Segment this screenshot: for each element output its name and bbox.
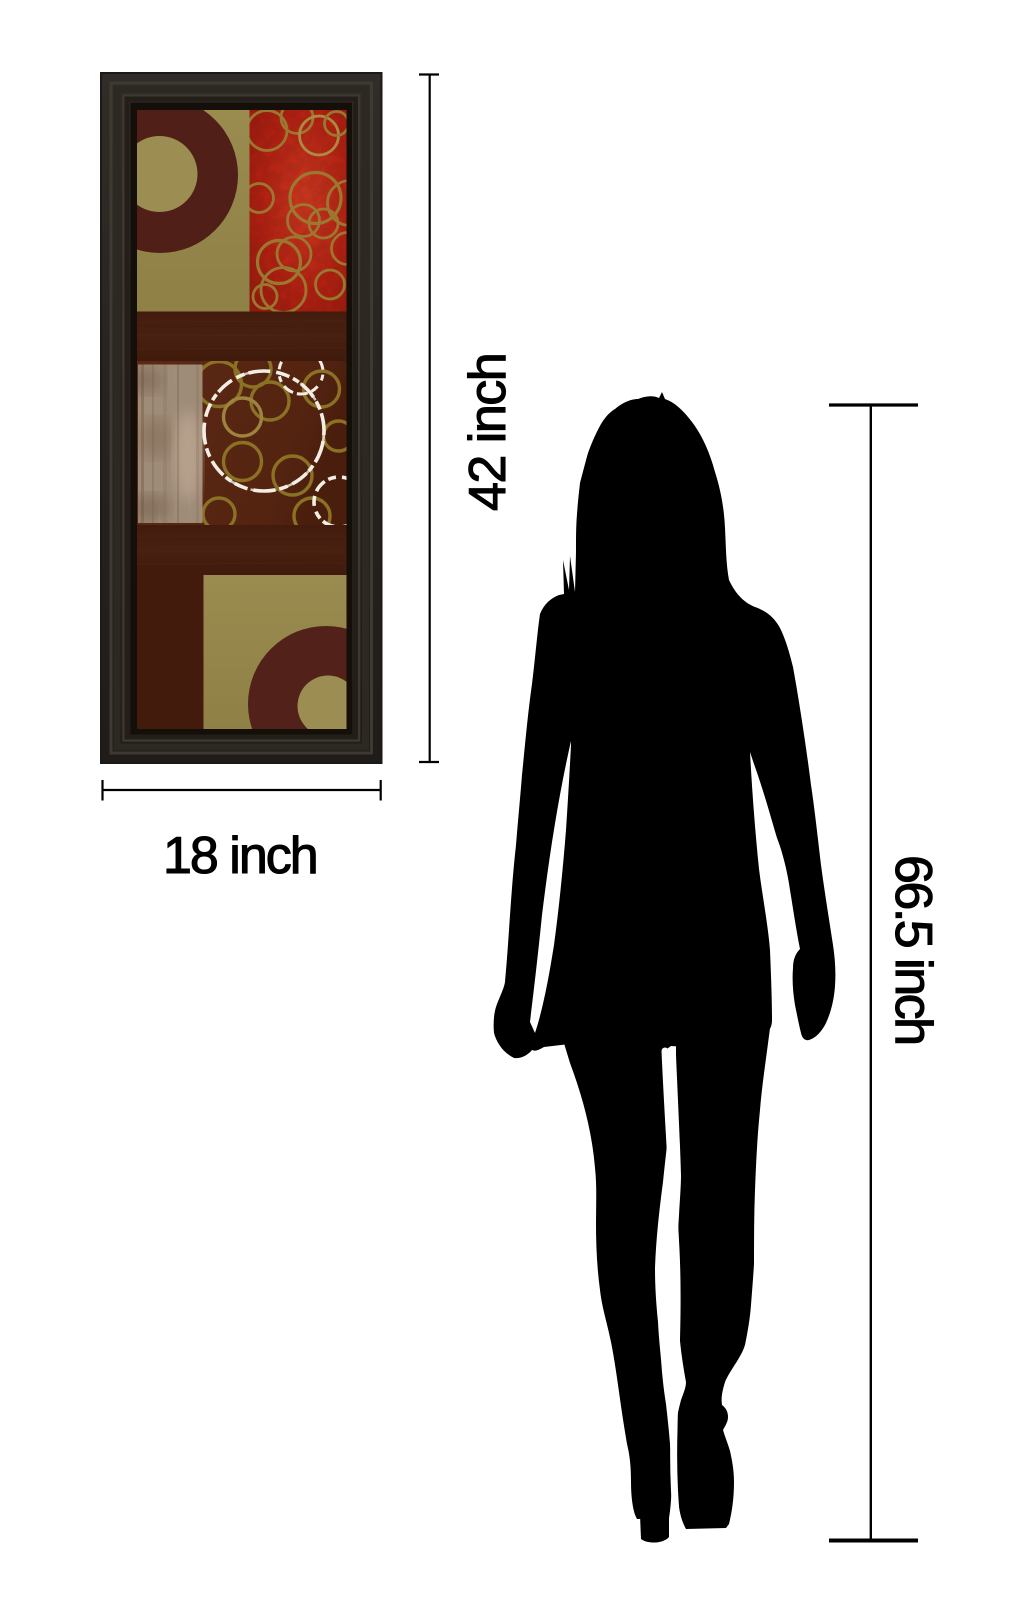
svg-text:66.5 inch: 66.5 inch [884,855,942,1044]
svg-text:18 inch: 18 inch [163,827,317,885]
svg-text:42 inch: 42 inch [459,354,517,511]
